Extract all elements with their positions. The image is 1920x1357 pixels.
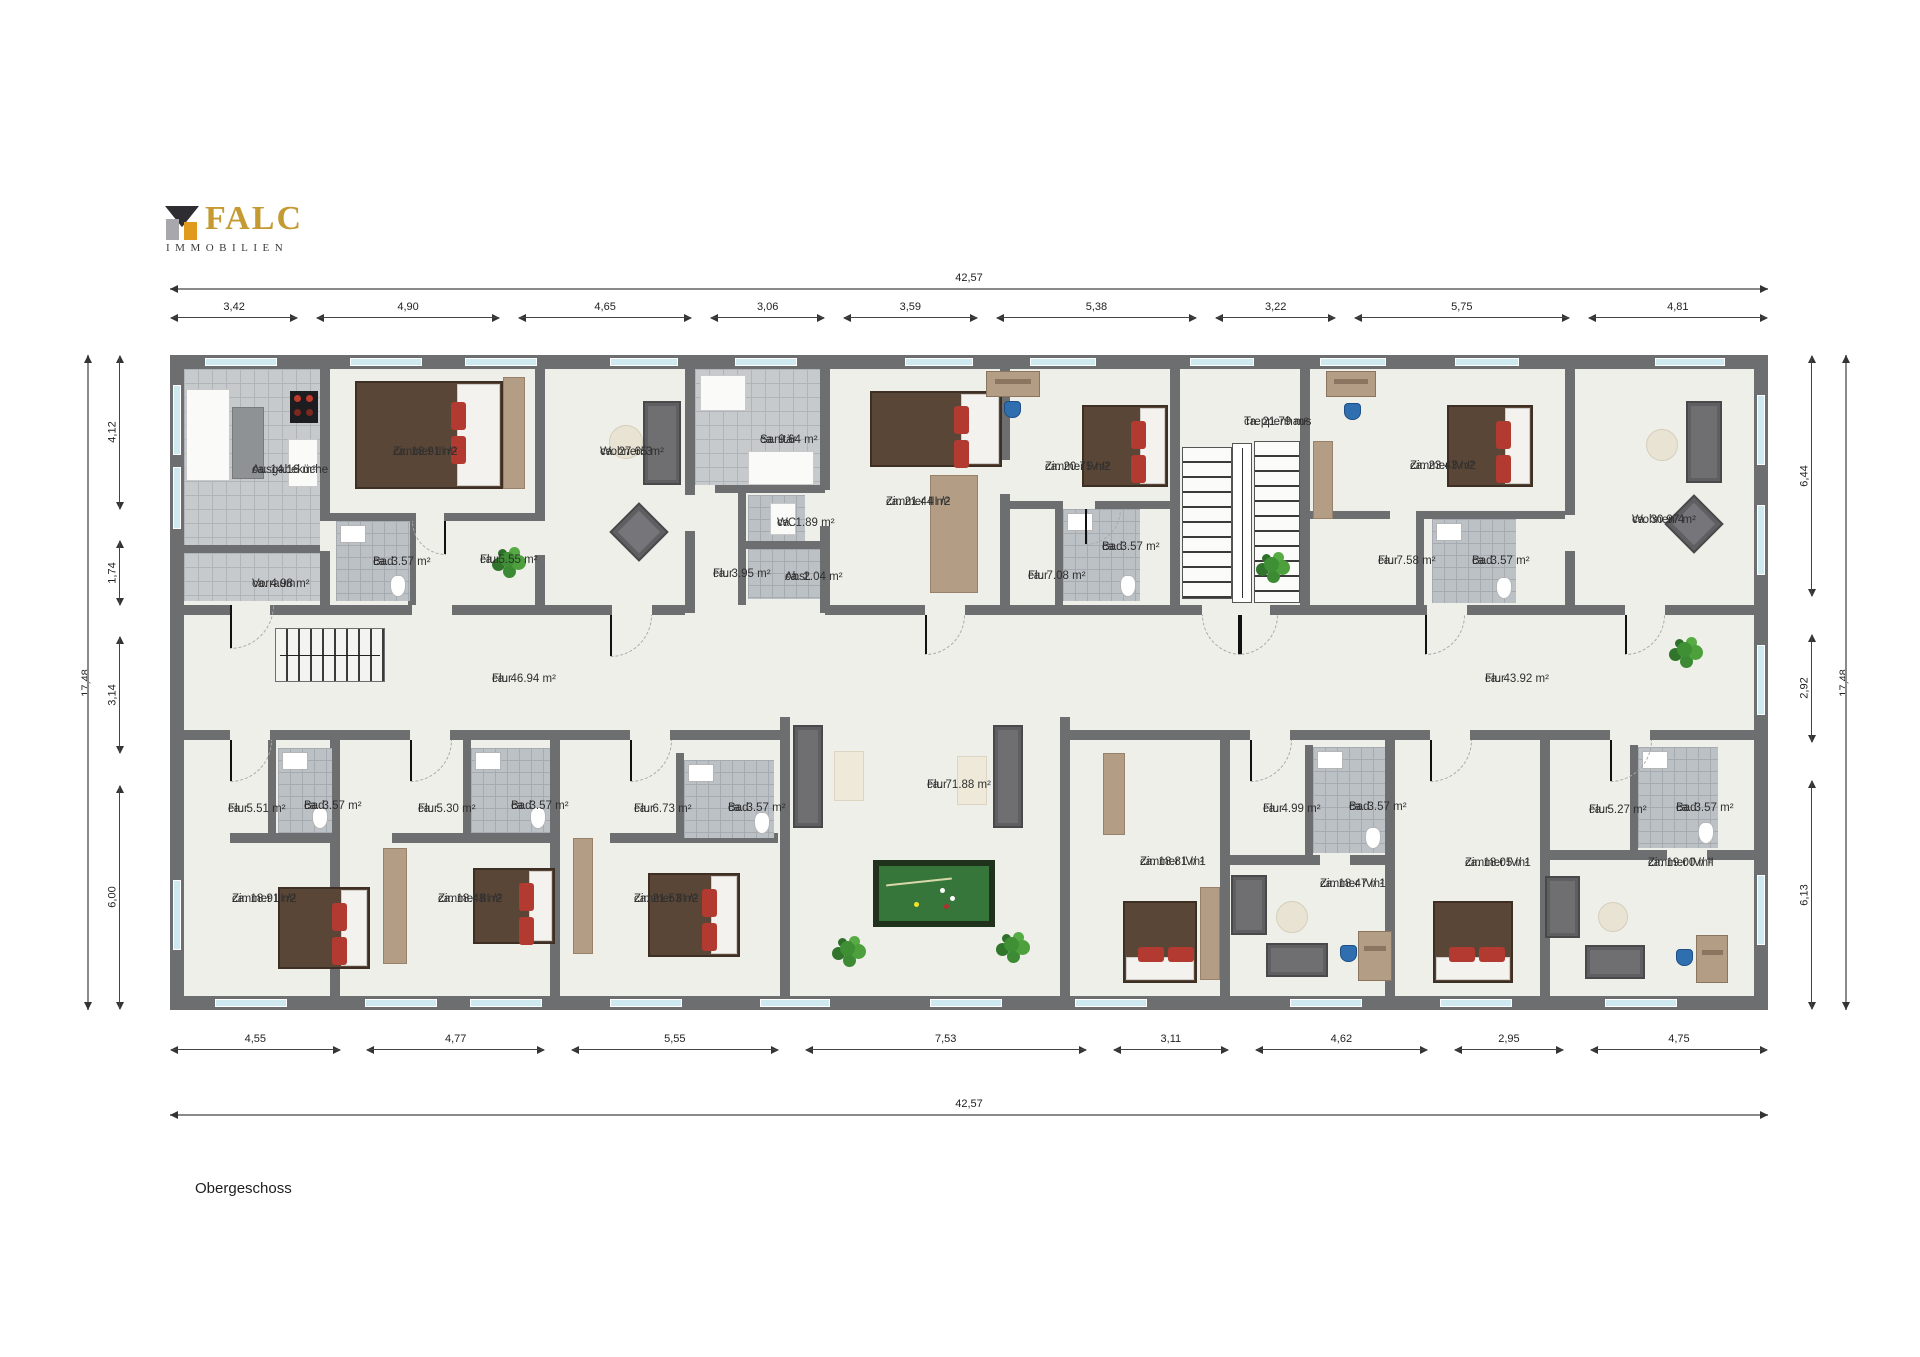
wall bbox=[676, 753, 684, 841]
wall bbox=[1270, 605, 1308, 615]
stair-landing bbox=[1232, 443, 1252, 603]
sofa bbox=[1545, 876, 1580, 938]
sink-icon bbox=[688, 764, 714, 782]
toilet-icon bbox=[390, 575, 406, 597]
toilet-icon bbox=[1698, 822, 1714, 844]
wall bbox=[1170, 369, 1180, 613]
door-arc bbox=[610, 615, 652, 657]
door-arc bbox=[630, 740, 672, 782]
wall bbox=[1565, 551, 1575, 609]
wardrobe bbox=[383, 848, 407, 964]
dim-segment: 6,44 bbox=[1800, 355, 1818, 597]
window bbox=[365, 999, 437, 1007]
window bbox=[1605, 999, 1677, 1007]
wardrobe bbox=[1313, 441, 1333, 519]
stair-flight bbox=[1182, 447, 1232, 599]
toilet-icon bbox=[1120, 575, 1136, 597]
logo-brand-text: FALC bbox=[205, 200, 303, 238]
window bbox=[1290, 999, 1362, 1007]
bathroom-tiles bbox=[278, 748, 332, 833]
desk bbox=[986, 371, 1040, 397]
wall bbox=[1422, 511, 1565, 519]
window bbox=[760, 999, 830, 1007]
wall bbox=[1540, 740, 1550, 996]
door-arc bbox=[412, 521, 446, 555]
wall bbox=[392, 833, 552, 843]
desk-chair bbox=[1004, 401, 1021, 418]
wall bbox=[965, 605, 1170, 615]
dim-segment: 2,92 bbox=[1800, 634, 1818, 744]
dim-segment: 4,62 bbox=[1255, 1036, 1428, 1054]
desk-chair bbox=[1676, 949, 1693, 966]
fixture bbox=[748, 451, 814, 485]
plant-icon bbox=[840, 941, 855, 956]
wall bbox=[1707, 850, 1768, 860]
window bbox=[905, 358, 973, 366]
sink-icon bbox=[475, 752, 501, 770]
window bbox=[610, 358, 678, 366]
dim-total-top: 42,57 bbox=[170, 276, 1768, 292]
wall bbox=[320, 369, 330, 515]
sofa bbox=[1686, 401, 1722, 483]
window bbox=[1320, 358, 1386, 366]
dim-segment: 6,00 bbox=[108, 785, 126, 1010]
wall bbox=[230, 833, 332, 843]
dim-segment: 4,55 bbox=[170, 1036, 341, 1054]
wall bbox=[184, 730, 230, 740]
dim-segment: 6,13 bbox=[1800, 780, 1818, 1010]
wall bbox=[825, 605, 925, 615]
sofa bbox=[993, 725, 1023, 828]
window bbox=[1440, 999, 1512, 1007]
rug bbox=[834, 751, 864, 801]
desk bbox=[1696, 935, 1728, 983]
floorplan-page: FALC IMMOBILIEN 42,57 3,424,904,653,063,… bbox=[0, 0, 1920, 1357]
wall bbox=[452, 605, 612, 615]
stair-flight bbox=[1254, 441, 1300, 603]
bed bbox=[870, 391, 1002, 467]
window bbox=[205, 358, 277, 366]
dim-segment: 5,55 bbox=[571, 1036, 779, 1054]
wall bbox=[1095, 501, 1170, 509]
dim-segment: 1,74 bbox=[108, 540, 126, 605]
wall bbox=[1070, 730, 1250, 740]
bed bbox=[648, 873, 740, 957]
window bbox=[1757, 505, 1765, 575]
logo-subtitle-text: IMMOBILIEN bbox=[166, 242, 288, 254]
wall bbox=[715, 485, 825, 493]
bed bbox=[355, 381, 503, 489]
wall bbox=[1170, 605, 1202, 615]
dim-segment: 2,95 bbox=[1454, 1036, 1565, 1054]
toilet-icon bbox=[1496, 577, 1512, 599]
door-arc bbox=[1250, 740, 1292, 782]
floor-plan: Ausgabekücheca. 14.16 m²Vorraumca. 4.98 … bbox=[170, 355, 1768, 1010]
dim-segment: 4,65 bbox=[518, 304, 692, 322]
window bbox=[930, 999, 1002, 1007]
dim-segments-bottom: 4,554,775,557,533,114,622,954,75 bbox=[170, 1036, 1768, 1054]
wall bbox=[1300, 369, 1310, 613]
wardrobe bbox=[1103, 753, 1125, 835]
wall bbox=[1467, 605, 1565, 615]
falc-logo-icon bbox=[165, 206, 199, 240]
fixture bbox=[700, 375, 746, 411]
sink-icon bbox=[1436, 523, 1462, 541]
window bbox=[1075, 999, 1147, 1007]
wardrobe bbox=[930, 475, 978, 593]
sofa bbox=[1231, 875, 1267, 935]
door-arc bbox=[1202, 615, 1242, 655]
fixture bbox=[186, 389, 230, 481]
window bbox=[173, 467, 181, 529]
wall bbox=[738, 493, 746, 605]
wall bbox=[1350, 855, 1387, 865]
wall bbox=[184, 545, 320, 553]
wall bbox=[270, 730, 410, 740]
window bbox=[1655, 358, 1725, 366]
sink-icon bbox=[1317, 751, 1343, 769]
desk-chair bbox=[1340, 945, 1357, 962]
window bbox=[173, 385, 181, 455]
door-arc bbox=[1238, 615, 1278, 655]
desk bbox=[1326, 371, 1376, 397]
window bbox=[1455, 358, 1519, 366]
bathroom-tiles bbox=[471, 748, 550, 833]
window bbox=[735, 358, 797, 366]
window bbox=[350, 358, 422, 366]
desk bbox=[1358, 931, 1392, 981]
wall bbox=[1060, 717, 1070, 1010]
round-rug bbox=[1598, 902, 1628, 932]
bed bbox=[1123, 901, 1197, 983]
wall bbox=[1565, 369, 1575, 515]
dim-segment: 3,11 bbox=[1113, 1036, 1230, 1054]
dim-segment: 3,59 bbox=[843, 304, 978, 322]
wall bbox=[1305, 745, 1313, 855]
wardrobe bbox=[503, 377, 525, 489]
wall bbox=[1665, 605, 1754, 615]
dim-segment: 5,38 bbox=[996, 304, 1198, 322]
wall bbox=[685, 369, 695, 495]
toilet-icon bbox=[1365, 827, 1381, 849]
dim-segment: 3,42 bbox=[170, 304, 298, 322]
window bbox=[610, 999, 682, 1007]
stove-icon bbox=[290, 391, 318, 423]
bathroom-tiles bbox=[684, 760, 774, 838]
door-arc bbox=[925, 615, 965, 655]
dim-segment: 7,53 bbox=[805, 1036, 1087, 1054]
dim-segment: 4,77 bbox=[366, 1036, 545, 1054]
dim-segment: 3,14 bbox=[108, 636, 126, 754]
wall bbox=[745, 541, 825, 549]
window bbox=[215, 999, 287, 1007]
plant-icon bbox=[1677, 642, 1692, 657]
wall bbox=[450, 730, 630, 740]
wall bbox=[320, 551, 330, 613]
wardrobe bbox=[573, 838, 593, 954]
door-arc bbox=[1425, 615, 1465, 655]
bed bbox=[1433, 901, 1513, 983]
door-arc bbox=[230, 605, 274, 649]
door-arc bbox=[1430, 740, 1472, 782]
plant-icon bbox=[1264, 557, 1279, 572]
sofa bbox=[793, 725, 823, 828]
dim-segment: 5,75 bbox=[1354, 304, 1570, 322]
wall bbox=[463, 740, 471, 837]
armchair bbox=[609, 502, 668, 561]
wall bbox=[1650, 730, 1754, 740]
wall bbox=[1055, 501, 1063, 605]
wall bbox=[820, 369, 830, 490]
wardrobe bbox=[1200, 887, 1220, 980]
dim-segment: 4,75 bbox=[1590, 1036, 1768, 1054]
window bbox=[465, 358, 537, 366]
wall bbox=[1470, 730, 1610, 740]
round-rug bbox=[1646, 429, 1678, 461]
billiard-table bbox=[873, 860, 995, 927]
window bbox=[1757, 395, 1765, 465]
sofa bbox=[1266, 943, 1328, 977]
wall bbox=[444, 513, 545, 521]
dim-total-right: 17,48 bbox=[1838, 355, 1854, 1010]
window bbox=[470, 999, 542, 1007]
wall bbox=[685, 531, 695, 613]
wall bbox=[1005, 501, 1061, 509]
window bbox=[173, 880, 181, 950]
dim-segments-left: 4,121,743,146,00 bbox=[108, 355, 126, 1010]
dim-segment: 3,06 bbox=[710, 304, 825, 322]
plant-icon bbox=[1004, 937, 1019, 952]
wall bbox=[320, 513, 412, 521]
window bbox=[1757, 875, 1765, 945]
wall bbox=[184, 605, 230, 615]
bathroom-tiles bbox=[1638, 747, 1718, 848]
dim-segment: 4,90 bbox=[316, 304, 500, 322]
door-arc bbox=[1625, 615, 1665, 655]
dim-segment: 4,81 bbox=[1588, 304, 1768, 322]
sink-icon bbox=[340, 525, 366, 543]
bed bbox=[1447, 405, 1533, 487]
door-arc bbox=[410, 740, 452, 782]
dim-total-bottom: 42,57 bbox=[170, 1102, 1768, 1118]
wall bbox=[780, 717, 790, 1010]
dim-segment: 4,12 bbox=[108, 355, 126, 510]
door-arc bbox=[230, 740, 272, 782]
wall bbox=[670, 730, 780, 740]
wall bbox=[1308, 605, 1427, 615]
dim-segment: 3,22 bbox=[1215, 304, 1336, 322]
corridor-stairs bbox=[275, 628, 385, 682]
window bbox=[1030, 358, 1096, 366]
desk-chair bbox=[1344, 403, 1361, 420]
dim-segments-right: 6,442,926,13 bbox=[1800, 355, 1818, 1010]
window bbox=[1757, 645, 1765, 715]
dim-segments-top: 3,424,904,653,063,595,383,225,754,81 bbox=[170, 304, 1768, 322]
window bbox=[1190, 358, 1254, 366]
wall bbox=[1220, 740, 1230, 996]
wall bbox=[535, 369, 545, 519]
dim-total-left: 17,48 bbox=[80, 355, 96, 1010]
sink-icon bbox=[282, 752, 308, 770]
sofa bbox=[643, 401, 681, 485]
wall bbox=[1230, 855, 1320, 865]
falc-logo: FALC IMMOBILIEN bbox=[165, 204, 385, 264]
wall bbox=[270, 605, 412, 615]
round-rug bbox=[1276, 901, 1308, 933]
wall bbox=[1000, 494, 1010, 613]
floor-name-label: Obergeschoss bbox=[195, 1180, 292, 1197]
wall bbox=[652, 605, 685, 615]
sofa bbox=[1585, 945, 1645, 979]
wall bbox=[1290, 730, 1430, 740]
